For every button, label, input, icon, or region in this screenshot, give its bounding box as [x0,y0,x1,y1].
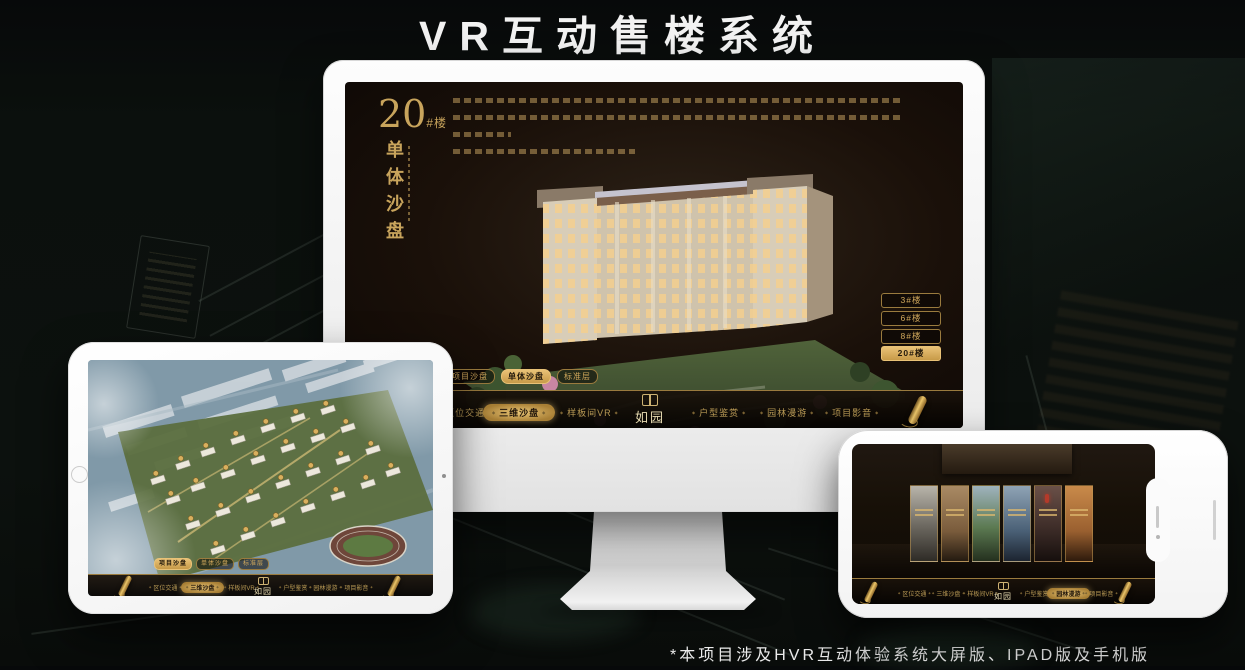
scene-panel-interior[interactable] [941,485,969,562]
scene-panel-courtyard[interactable] [910,485,938,562]
project-logo-text: 如园 [635,410,665,425]
scene-panel-night-court[interactable] [1034,485,1062,562]
scene-panel-label [1039,508,1057,516]
tab-single-building-sandbox[interactable]: 单体沙盘 [501,369,551,384]
tablet-screen: 项目沙盘 单体沙盘 标准层 区位交通 三维沙盘 样板间VR 如园 户型鉴赏 园林… [88,360,433,596]
floor-button-3[interactable]: 3#楼 [881,293,941,308]
notch-camera [1156,535,1160,539]
project-logo-text: 如园 [254,587,272,596]
home-indicator [1213,500,1216,540]
tablet-navbar: 区位交通 三维沙盘 样板间VR 如园 户型鉴赏 园林漫游 项目影音 [88,574,433,596]
floor-button-20[interactable]: 20#楼 [881,346,941,361]
floor-button-8[interactable]: 8#楼 [881,329,941,344]
tablet-device: 项目沙盘 单体沙盘 标准层 区位交通 三维沙盘 样板间VR 如园 户型鉴赏 园林… [68,342,453,614]
sandbox-subtabs: 项目沙盘 单体沙盘 标准层 [445,369,598,384]
nav-item-project-media[interactable]: 项目影音 [816,404,888,421]
nav-item-3d-sandbox[interactable]: 三维沙盘 [181,582,224,593]
tab-standard-floor[interactable]: 标准层 [238,558,269,570]
nav-item-3d-sandbox[interactable]: 三维沙盘 [483,404,555,421]
seal-icon [642,394,658,406]
lantern-accent [1045,494,1049,503]
scene-panel-label [946,508,964,516]
phone-screen: 区位交通 三维沙盘 样板间VR 如园 户型鉴赏 园林漫游 项目影音 [852,444,1155,604]
nav-item-floorplans[interactable]: 户型鉴赏 [683,404,755,421]
nav-item-garden-tour[interactable]: 园林漫游 [751,404,823,421]
scroll-icon[interactable] [117,575,132,596]
monitor-stand [552,511,764,610]
bg-plaque [126,235,210,339]
seal-icon [258,577,269,585]
phone-notch [1146,478,1170,562]
tablet-subtabs: 项目沙盘 单体沙盘 标准层 [154,558,269,570]
home-button [71,466,88,483]
project-logo[interactable]: 如园 [989,582,1017,602]
footnote: *本项目涉及HVR互动体验系统大屏版、IPAD版及手机版 [670,641,1150,665]
scroll-icon[interactable] [863,581,878,603]
floor-button-6[interactable]: 6#楼 [881,311,941,326]
project-logo-text: 如园 [994,592,1012,601]
scene-panel-label [915,508,933,516]
tab-single-building-sandbox[interactable]: 单体沙盘 [196,558,234,570]
interior-ceiling-light [942,444,1072,474]
scroll-icon[interactable] [907,395,928,426]
scene-panel-label [1008,508,1026,516]
notch-speaker [1156,506,1159,528]
scene-panel-label [1070,508,1088,516]
phone-device: 区位交通 三维沙盘 样板间VR 如园 户型鉴赏 园林漫游 项目影音 [838,430,1228,618]
camera-dot [442,474,446,478]
seal-icon [998,582,1009,590]
project-logo[interactable]: 如园 [626,394,674,426]
tab-standard-floor[interactable]: 标准层 [557,369,598,384]
scene-panel-building[interactable] [1003,485,1031,562]
scroll-icon[interactable] [386,575,401,596]
scene-panel-shelves[interactable] [1065,485,1093,562]
nav-item-showroom-vr[interactable]: 样板间VR [551,404,628,421]
bg-road-line [198,230,331,302]
page-title: VR互动售楼系统 [0,2,1245,62]
tab-project-sandbox[interactable]: 项目沙盘 [154,558,192,570]
nav-item-project-media[interactable]: 项目影音 [335,582,378,593]
phone-navbar: 区位交通 三维沙盘 样板间VR 如园 户型鉴赏 园林漫游 项目影音 [852,578,1155,604]
scene-panel-label [977,508,995,516]
scene-panel-landscape[interactable] [972,485,1000,562]
